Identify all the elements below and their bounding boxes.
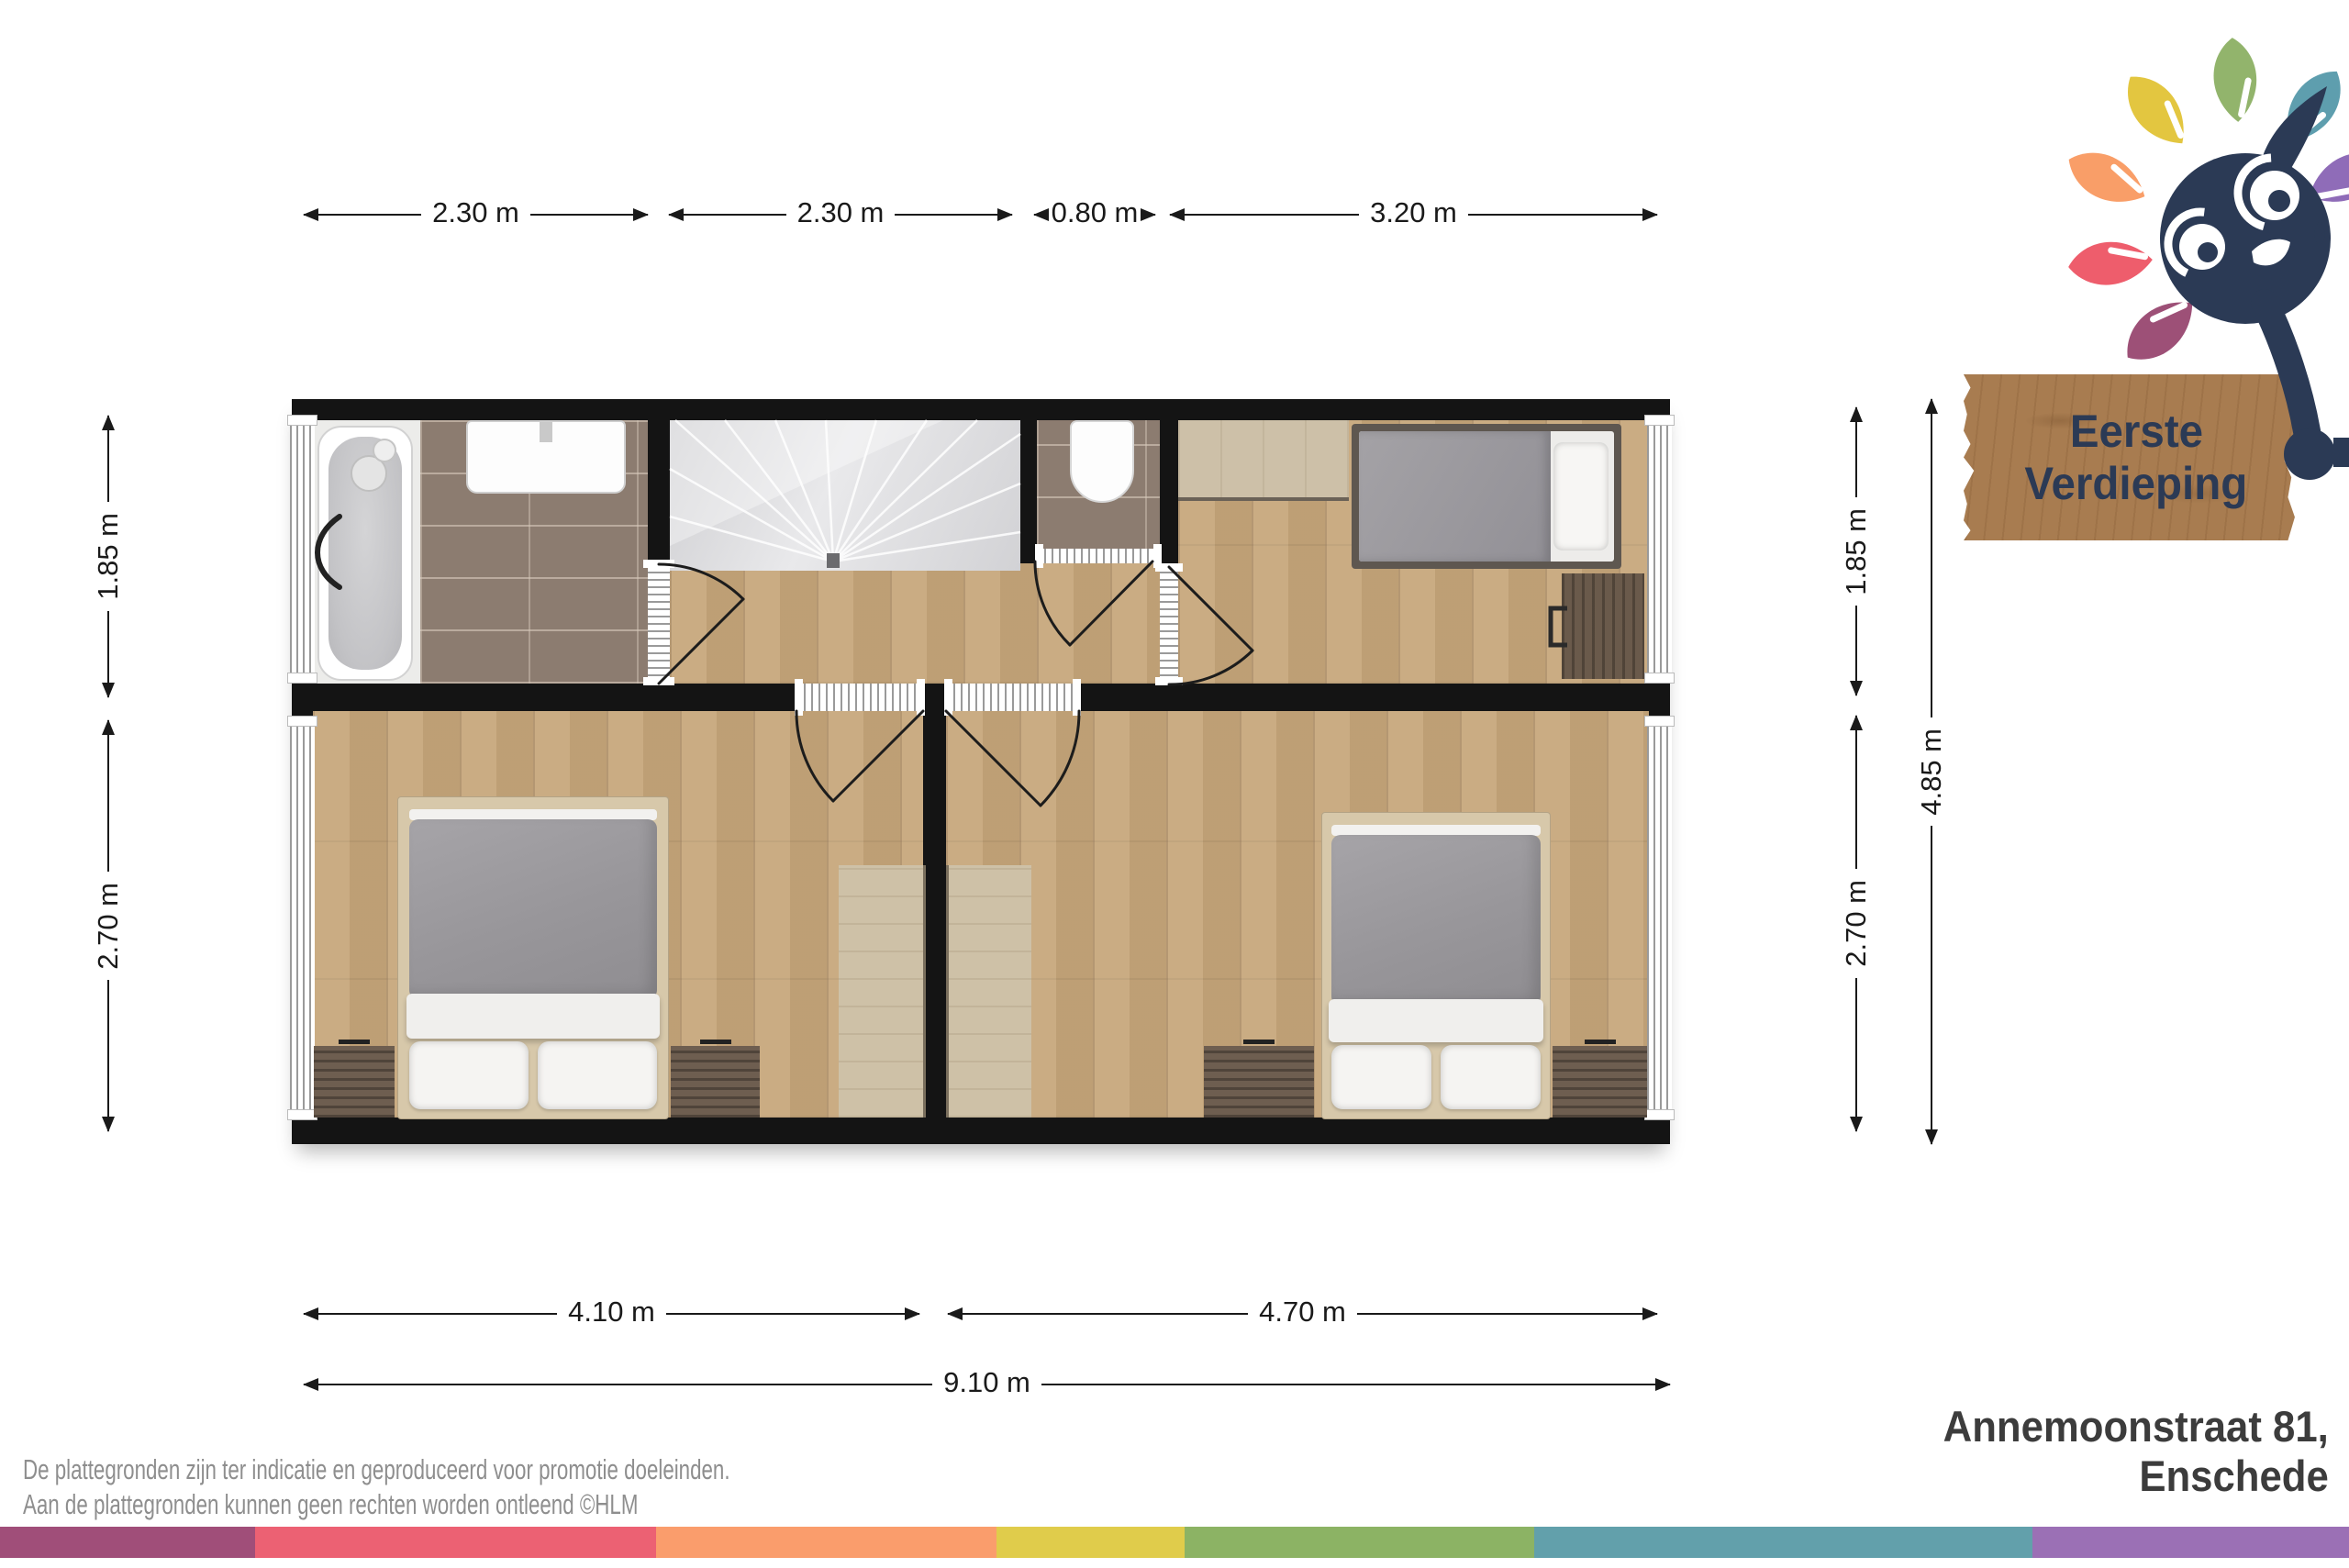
bathtub xyxy=(317,426,413,681)
floorplan xyxy=(292,399,1670,1144)
bedroom-bottom-left-window xyxy=(290,718,315,1118)
pillow xyxy=(538,1041,657,1109)
dim-label: 3.20 m xyxy=(1359,196,1468,229)
stripe-segment xyxy=(2032,1527,2349,1558)
desk xyxy=(1562,573,1644,679)
leaf-icon-green xyxy=(2211,36,2260,123)
dim-label: 0.80 m xyxy=(1041,196,1150,229)
nightstand xyxy=(314,1046,395,1118)
mascot-head xyxy=(2160,153,2331,324)
dim-top-bathroom: 2.30 m xyxy=(304,200,648,229)
pillow xyxy=(409,1041,529,1109)
nightstand xyxy=(1553,1046,1647,1118)
nightstand xyxy=(1204,1046,1314,1118)
bedroom-bottom-right-door xyxy=(946,684,1079,711)
dim-right-upper: 1.85 m xyxy=(1841,407,1872,695)
leaf-icon-teal xyxy=(2272,60,2349,153)
bathroom-door xyxy=(648,562,670,684)
sink-faucet xyxy=(540,422,552,442)
bathroom-window xyxy=(290,417,315,681)
dim-bottom-left-bedroom: 4.10 m xyxy=(304,1299,919,1329)
double-bed-right xyxy=(1321,812,1551,1119)
closet-left-bedroom xyxy=(839,865,926,1118)
dim-bottom-total: 9.10 m xyxy=(304,1370,1670,1399)
disclaimer: De plattegronden zijn ter indicatie en g… xyxy=(23,1452,730,1522)
bedroom-top-right-window xyxy=(1647,417,1672,681)
toilet-door xyxy=(1037,549,1160,563)
disclaimer-line1: De plattegronden zijn ter indicatie en g… xyxy=(23,1452,730,1487)
mascot-horn xyxy=(2263,86,2327,176)
dim-label: 2.70 m xyxy=(1840,869,1873,978)
mascot-eye-right xyxy=(2250,171,2299,220)
dim-top-bedroom: 3.20 m xyxy=(1170,200,1657,229)
dim-left-lower: 2.70 m xyxy=(93,720,124,1131)
disclaimer-line2: Aan de plattegronden kunnen geen rechten… xyxy=(23,1487,730,1522)
footer-stripe xyxy=(0,1527,2349,1558)
floor-sign: Eerste Verdieping xyxy=(1964,374,2309,540)
mascot-side-bar xyxy=(2333,438,2349,467)
leaf-icon-purple xyxy=(2299,140,2349,216)
dim-top-stairwell: 2.30 m xyxy=(669,200,1012,229)
bedroom-bottom-left-door xyxy=(796,684,923,711)
toilet-fixture xyxy=(1070,420,1134,503)
stripe-segment xyxy=(656,1527,996,1558)
eye-crescent-left xyxy=(2157,201,2243,286)
sideboard xyxy=(1178,420,1349,501)
dim-label: 4.10 m xyxy=(557,1296,666,1329)
closet-right-bedroom xyxy=(946,865,1031,1118)
dim-label: 2.70 m xyxy=(92,872,125,981)
leaf-icon-yellow xyxy=(2113,63,2199,156)
mascot-drop xyxy=(2314,220,2325,244)
dim-label: 2.30 m xyxy=(421,196,530,229)
dim-left-upper: 1.85 m xyxy=(93,416,124,697)
leaf-icon-orange xyxy=(2059,140,2154,216)
double-bed-left xyxy=(397,796,669,1119)
dim-label: 9.10 m xyxy=(932,1366,1041,1399)
wall-toilet-bedroom xyxy=(1160,399,1178,565)
floor-sign-line2: Verdieping xyxy=(2025,458,2248,510)
floor-sign-line1: Eerste xyxy=(2069,406,2202,458)
mascot-eye-left xyxy=(2179,224,2225,270)
dim-label: 2.30 m xyxy=(786,196,896,229)
dim-label: 1.85 m xyxy=(92,502,125,611)
staircase xyxy=(670,420,1020,571)
pillow xyxy=(1441,1045,1542,1109)
eye-crescent-right xyxy=(2230,150,2315,235)
stripe-segment xyxy=(996,1527,1185,1558)
single-bed xyxy=(1352,424,1621,569)
bedroom-bottom-right-window xyxy=(1647,718,1672,1118)
dim-label: 4.85 m xyxy=(1915,717,1948,827)
wall-stairs-toilet xyxy=(1020,399,1037,563)
dim-bottom-right-bedroom: 4.70 m xyxy=(948,1299,1657,1329)
dim-label: 1.85 m xyxy=(1840,497,1873,606)
dim-top-toilet: 0.80 m xyxy=(1034,200,1155,229)
bathroom-sink xyxy=(466,420,626,494)
leaf-fan xyxy=(2059,36,2349,373)
stripe-segment xyxy=(255,1527,656,1558)
dim-right-total: 4.85 m xyxy=(1916,399,1947,1144)
leaf-icon-plum xyxy=(2114,287,2206,374)
floorplan-page: { "floor_label": {"line1": "Eerste", "li… xyxy=(0,0,2349,1568)
dim-line xyxy=(530,214,648,216)
address: Annemoonstraat 81, Enschede xyxy=(1943,1402,2329,1501)
address-line1: Annemoonstraat 81, xyxy=(1943,1402,2329,1451)
stripe-segment xyxy=(0,1527,255,1558)
leaf-icon-coral xyxy=(2066,239,2154,288)
nightstand xyxy=(671,1046,760,1118)
bedroom-top-right-door xyxy=(1160,565,1178,684)
dim-right-lower: 2.70 m xyxy=(1841,716,1872,1131)
dim-label: 4.70 m xyxy=(1248,1296,1357,1329)
stripe-segment xyxy=(1185,1527,1534,1558)
address-line2: Enschede xyxy=(1943,1451,2329,1501)
dim-line xyxy=(304,214,421,216)
pillow xyxy=(1331,1045,1432,1109)
stripe-segment xyxy=(1534,1527,2032,1558)
mascot-mouth xyxy=(2252,239,2290,266)
